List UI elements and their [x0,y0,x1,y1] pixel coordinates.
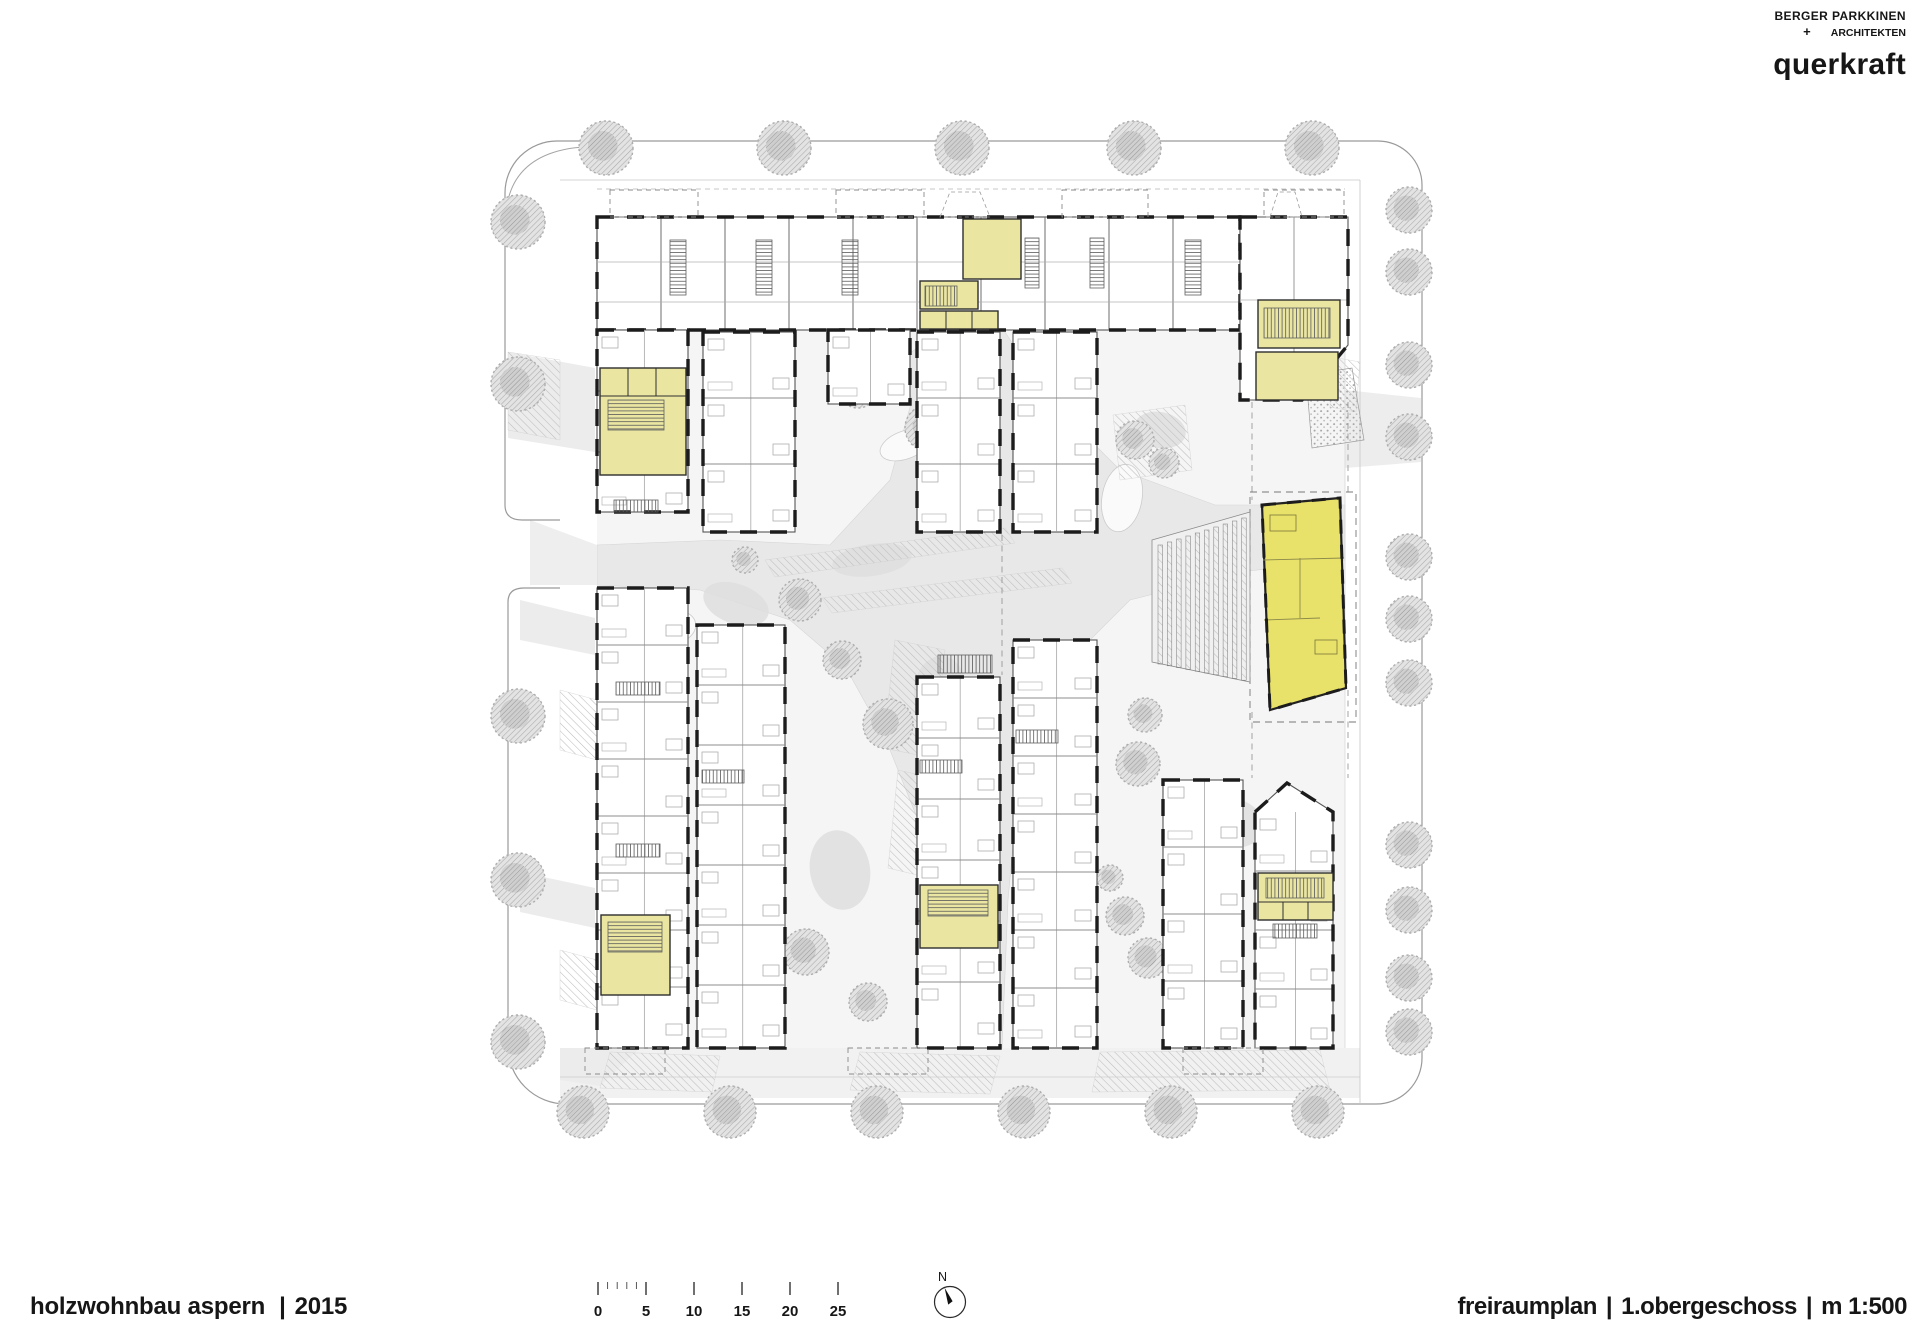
tree-icon [732,547,758,573]
site-plan [0,0,1921,1329]
building-block [917,677,1000,1048]
scale-label: 20 [782,1303,799,1320]
tree-icon [779,579,821,621]
drawing-scale: m 1:500 [1821,1293,1907,1320]
logo-querkraft: querkraft [1773,49,1906,81]
stair-icon [1016,730,1058,743]
building-block [597,217,1240,330]
building-block [703,332,795,532]
stair-icon [1273,924,1317,938]
tree-icon [783,929,829,975]
drawing-floor: 1.obergeschoss [1621,1293,1797,1320]
highlighted-unit-footprint [1262,498,1346,710]
scale-label: 15 [734,1303,751,1320]
stair-icon [616,682,660,695]
project-name: holzwohnbau aspern [30,1293,265,1320]
tree-icon [1386,1009,1432,1055]
stair-icon [1266,878,1324,898]
north-arrow-icon: N [924,1272,980,1328]
stair-icon [614,500,658,512]
tree-icon [1145,1086,1197,1138]
tree-icon [1128,698,1162,732]
stair-core-highlight [963,219,1021,279]
divider: | [1806,1293,1812,1321]
tree-icon [1149,448,1179,478]
stair-icon [616,844,660,857]
stair-icon [920,760,962,773]
tree-icon [1386,342,1432,388]
tree-icon [935,121,989,175]
stair-icon [608,922,662,952]
stair-icon [670,240,686,295]
drawing-title: freiraumplan|1.obergeschoss|m 1:500 [1458,1293,1907,1321]
tree-icon [1116,742,1160,786]
project-title: holzwohnbau aspern|2015 [30,1293,347,1321]
logo-architekten-line: +ARCHITEKTEN [1773,25,1906,39]
stair-icon [928,890,988,916]
tree-icon [849,983,887,1021]
scale-label: 5 [642,1303,650,1320]
stair-icon [842,240,858,295]
stair-icon [1185,240,1201,295]
scale-bar: 0 5 10 15 20 25 [586,1281,852,1325]
tree-icon [1386,660,1432,706]
drawing-type: freiraumplan [1458,1293,1597,1320]
pergola-structure [1152,512,1250,682]
logo-architekten: ARCHITEKTEN [1831,27,1906,39]
stair-core-highlight [920,311,998,329]
tree-icon [1107,121,1161,175]
tree-icon [998,1086,1050,1138]
stair-core-highlight [1256,352,1338,400]
tree-icon [491,853,545,907]
plus-sign: + [1803,25,1811,39]
tree-icon [757,121,811,175]
tree-icon [1386,955,1432,1001]
divider: | [1606,1293,1612,1321]
tree-icon [1386,414,1432,460]
tree-icon [491,1015,545,1069]
north-arrow-graphic [924,1272,980,1328]
tree-icon [1097,865,1123,891]
tree-icon [1386,534,1432,580]
stair-icon [1264,308,1330,338]
tree-icon [863,699,913,749]
tree-icon [704,1086,756,1138]
building-block [917,332,1000,532]
stair-icon [938,655,992,673]
sheet: BERGER PARKKINEN +ARCHITEKTEN querkraft … [0,0,1921,1329]
architects-logo-block: BERGER PARKKINEN +ARCHITEKTEN querkraft [1773,10,1906,80]
tree-icon [1386,887,1432,933]
tree-icon [557,1086,609,1138]
stair-icon [1025,238,1039,288]
stair-icon [702,770,744,783]
building-block [828,330,910,404]
tree-icon [1285,121,1339,175]
scale-bar-ticks [586,1281,852,1301]
tree-icon [1116,421,1154,459]
stair-icon [608,400,664,430]
divider: | [279,1293,286,1321]
tree-icon [579,121,633,175]
tree-icon [1386,187,1432,233]
scale-label: 10 [686,1303,703,1320]
tree-icon [823,641,861,679]
tree-icon [1292,1086,1344,1138]
scale-label: 0 [594,1303,602,1320]
tree-icon [1386,822,1432,868]
tree-icon [851,1086,903,1138]
logo-berger-parkkinen: BERGER PARKKINEN [1773,10,1906,23]
tree-icon [1106,897,1144,935]
building-block [1013,640,1097,1048]
tree-icon [491,195,545,249]
building-block [1013,332,1097,532]
stair-icon [756,240,772,295]
stair-icon [1090,238,1104,288]
tree-icon [1386,249,1432,295]
tree-icon [491,689,545,743]
scale-label: 25 [830,1303,847,1320]
tree-icon [1386,596,1432,642]
scale-bar-labels: 0 5 10 15 20 25 [586,1303,852,1323]
project-year: 2015 [295,1293,348,1320]
stair-icon [925,286,957,306]
tree-icon [491,357,545,411]
